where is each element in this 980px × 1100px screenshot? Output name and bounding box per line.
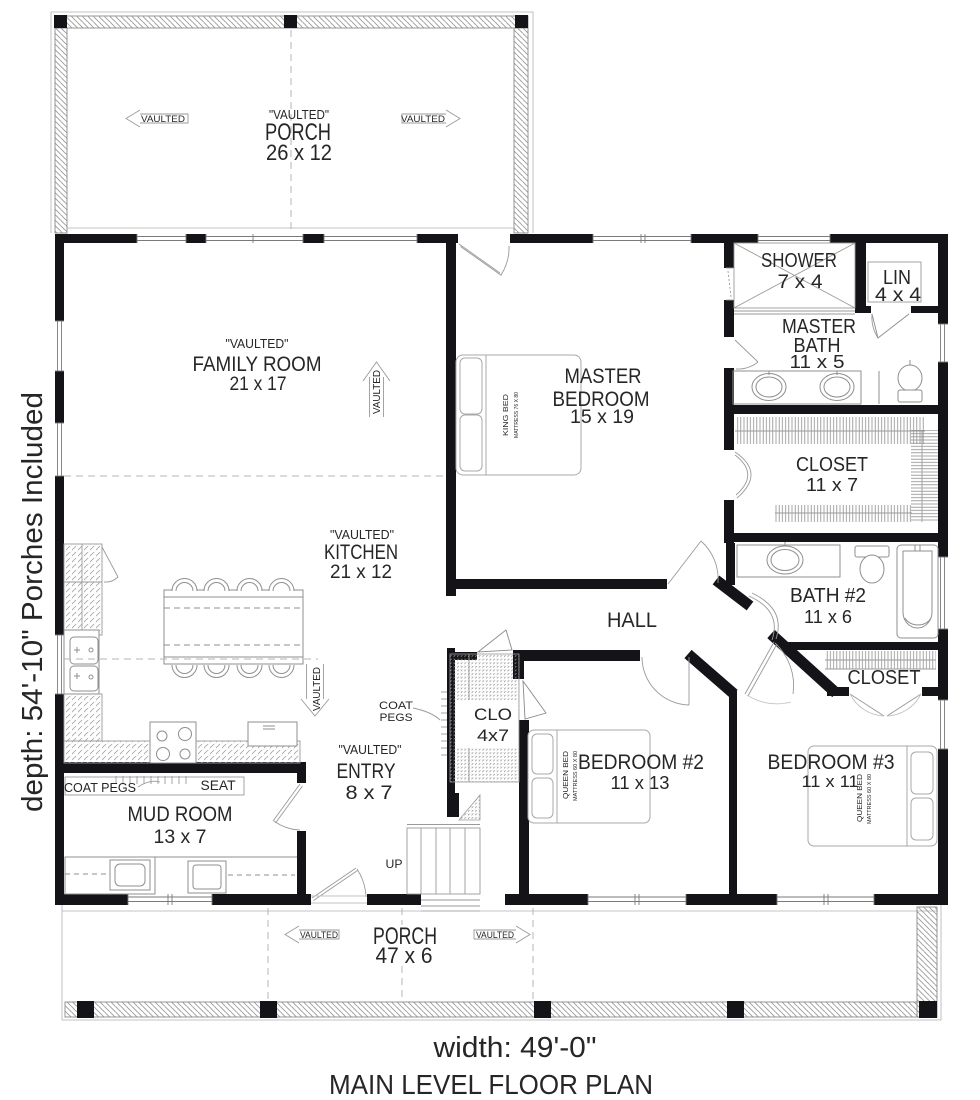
svg-text:BEDROOM #2: BEDROOM #2: [578, 751, 704, 774]
svg-text:MASTER: MASTER: [565, 365, 642, 388]
svg-text:KITCHEN: KITCHEN: [324, 541, 398, 564]
svg-text:MATTRESS 60 X 80: MATTRESS 60 X 80: [867, 774, 873, 824]
svg-text:15 x 19: 15 x 19: [570, 407, 634, 428]
svg-text:BEDROOM #3: BEDROOM #3: [768, 751, 895, 774]
svg-text:CLOSET: CLOSET: [848, 667, 921, 689]
svg-text:7 x 4: 7 x 4: [778, 272, 823, 293]
svg-text:4 x 4: 4 x 4: [875, 285, 921, 306]
svg-text:VAULTED: VAULTED: [141, 114, 185, 125]
svg-text:26 x 12: 26 x 12: [266, 140, 332, 165]
svg-text:21 x 17: 21 x 17: [230, 374, 287, 395]
svg-text:depth: 54'-10" Porches Include: depth: 54'-10" Porches Included: [17, 392, 49, 812]
svg-text:21 x 12: 21 x 12: [330, 562, 392, 583]
svg-text:UP: UP: [386, 857, 403, 871]
svg-text:11 x 6: 11 x 6: [804, 607, 852, 627]
svg-text:ENTRY: ENTRY: [337, 760, 396, 783]
svg-text:COAT PEGS: COAT PEGS: [64, 780, 136, 795]
svg-text:VAULTED: VAULTED: [401, 114, 445, 125]
svg-text:SHOWER: SHOWER: [761, 250, 837, 272]
svg-text:QUEEN BED: QUEEN BED: [563, 751, 570, 799]
svg-text:4x7: 4x7: [477, 726, 509, 745]
svg-text:11 x 13: 11 x 13: [611, 773, 670, 793]
svg-text:VAULTED: VAULTED: [476, 930, 514, 941]
svg-text:CLOSET: CLOSET: [796, 454, 868, 476]
svg-text:SEAT: SEAT: [201, 777, 236, 793]
svg-text:"VAULTED": "VAULTED": [339, 742, 402, 757]
svg-text:11 x 5: 11 x 5: [790, 352, 845, 372]
svg-text:13 x 7: 13 x 7: [154, 827, 207, 848]
svg-text:VAULTED: VAULTED: [300, 930, 338, 941]
svg-text:11 x 11: 11 x 11: [802, 772, 859, 791]
svg-text:CLO: CLO: [474, 705, 512, 724]
svg-text:"VAULTED": "VAULTED": [226, 336, 289, 351]
svg-text:MAIN LEVEL FLOOR PLAN: MAIN LEVEL FLOOR PLAN: [329, 1069, 653, 1100]
svg-text:47 x 6: 47 x 6: [376, 943, 433, 968]
svg-text:VAULTED: VAULTED: [372, 370, 383, 414]
svg-text:FAMILY ROOM: FAMILY ROOM: [193, 353, 322, 376]
svg-text:11 x 7: 11 x 7: [806, 475, 858, 495]
svg-text:PEGS: PEGS: [380, 712, 413, 724]
svg-text:MATTRESS 76 X 80: MATTRESS 76 X 80: [514, 392, 520, 438]
svg-text:HALL: HALL: [607, 609, 657, 632]
svg-text:COAT: COAT: [379, 700, 413, 712]
svg-text:VAULTED: VAULTED: [312, 667, 323, 711]
svg-text:KING BED: KING BED: [503, 394, 510, 436]
svg-text:BATH #2: BATH #2: [790, 585, 866, 607]
svg-text:"VAULTED": "VAULTED": [330, 527, 394, 542]
svg-text:width: 49'-0": width: 49'-0": [432, 1032, 596, 1064]
svg-text:MUD ROOM: MUD ROOM: [128, 803, 233, 826]
svg-text:8 x 7: 8 x 7: [346, 783, 393, 804]
